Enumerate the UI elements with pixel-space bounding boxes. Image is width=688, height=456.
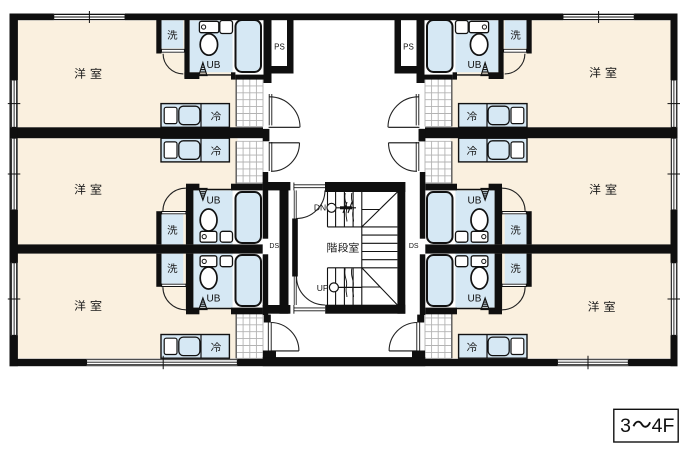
svg-text:4F: 4F	[652, 415, 675, 437]
svg-text:UB: UB	[468, 293, 482, 304]
svg-text:UB: UB	[468, 60, 482, 71]
svg-text:DS: DS	[269, 243, 279, 250]
svg-text:UB: UB	[468, 195, 482, 206]
svg-text:UB: UB	[207, 293, 221, 304]
svg-text:DN: DN	[314, 203, 326, 213]
svg-text:UB: UB	[207, 195, 221, 206]
svg-text:UB: UB	[207, 60, 221, 71]
svg-text:PS: PS	[274, 42, 285, 51]
svg-text:PS: PS	[403, 42, 414, 51]
svg-text:3: 3	[620, 415, 631, 437]
svg-text:UP: UP	[317, 283, 329, 293]
svg-text:DS: DS	[409, 243, 419, 250]
